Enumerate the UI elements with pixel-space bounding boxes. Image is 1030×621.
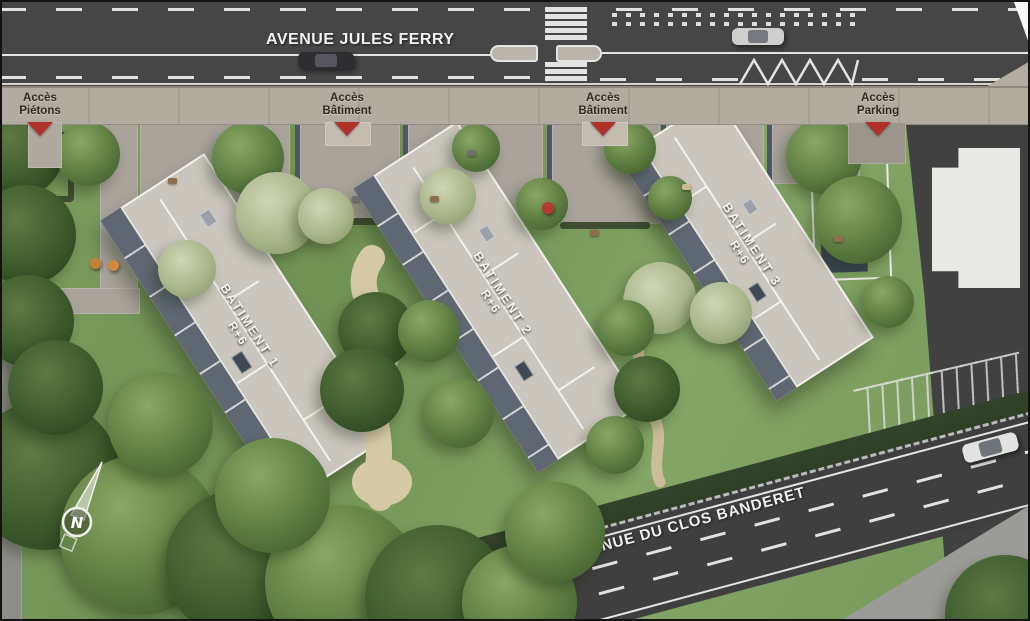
terrace-furniture <box>590 230 599 236</box>
north-compass-icon: N <box>44 458 124 554</box>
access-line2: Bâtiment <box>299 105 395 118</box>
traffic-island <box>556 45 602 62</box>
crosswalk-stripe <box>545 7 587 12</box>
dotted-line <box>612 13 862 17</box>
tree <box>452 124 500 172</box>
umbrella <box>108 260 119 271</box>
car <box>732 28 784 45</box>
terrace-furniture <box>834 236 843 242</box>
access-batiment-2-label: Accès Bâtiment <box>555 92 651 118</box>
tree <box>648 176 692 220</box>
car-windshield <box>978 437 1004 457</box>
umbrella <box>90 258 101 269</box>
zigzag-marking <box>738 56 864 86</box>
crosswalk-stripe <box>545 28 587 33</box>
terrace-furniture <box>430 196 439 202</box>
center-line <box>596 52 1030 54</box>
crosswalk-stripe <box>545 76 587 81</box>
access-line1: Accès <box>555 92 651 105</box>
crosswalk-stripe <box>545 21 587 26</box>
tree <box>158 240 216 298</box>
avenue-jules-ferry-road: AVENUE JULES FERRY <box>0 0 1030 86</box>
tree <box>614 356 680 422</box>
terrace-furniture <box>468 150 476 156</box>
access-line1: Accès <box>299 92 395 105</box>
lane-dashes <box>600 78 740 81</box>
tree <box>298 188 354 244</box>
terrace-furniture <box>682 184 691 190</box>
tree <box>56 122 120 186</box>
tree <box>814 176 902 264</box>
terrace-furniture <box>168 178 177 184</box>
access-batiment-2-marker-icon <box>590 122 616 136</box>
access-line1: Accès <box>830 92 926 105</box>
avenue-jules-ferry-label: AVENUE JULES FERRY <box>266 31 455 49</box>
access-line2: Bâtiment <box>555 105 651 118</box>
center-line <box>0 54 497 56</box>
access-batiment-1-marker-icon <box>334 122 360 136</box>
access-pietons-marker-icon <box>27 122 53 136</box>
traffic-island <box>490 45 538 62</box>
site-plan: BATIMENT 1 R+6 BATIMENT 2 R+6 BATIMENT 3… <box>0 0 1030 621</box>
tree <box>320 348 404 432</box>
crosswalk-stripe <box>545 14 587 19</box>
crosswalk-stripe <box>545 69 587 74</box>
tree <box>8 340 103 435</box>
car <box>298 52 354 69</box>
crosswalk-stripe <box>545 35 587 40</box>
north-label: N <box>71 514 84 532</box>
tree <box>398 300 460 362</box>
access-line2: Piétons <box>0 105 88 118</box>
tree <box>424 378 494 448</box>
access-line2: Parking <box>830 105 926 118</box>
terrace-furniture <box>352 196 360 202</box>
crosswalk-stripe <box>545 62 587 67</box>
tree <box>215 438 330 553</box>
lane-dashes <box>0 8 1030 11</box>
access-pietons-label: Accès Piétons <box>0 92 88 118</box>
lane-dashes <box>0 76 540 79</box>
access-parking-marker-icon <box>865 122 891 136</box>
tree <box>586 416 644 474</box>
tree <box>690 282 752 344</box>
tree <box>420 168 476 224</box>
tree <box>598 300 654 356</box>
access-line1: Accès <box>0 92 88 105</box>
car-windshield <box>748 30 769 43</box>
tree <box>505 482 605 582</box>
access-parking-label: Accès Parking <box>830 92 926 118</box>
dotted-line <box>612 22 862 26</box>
car-windshield <box>315 54 337 67</box>
tree <box>862 276 914 328</box>
access-batiment-1-label: Accès Bâtiment <box>299 92 395 118</box>
road-edge-line <box>0 83 1030 85</box>
umbrella <box>542 202 554 214</box>
